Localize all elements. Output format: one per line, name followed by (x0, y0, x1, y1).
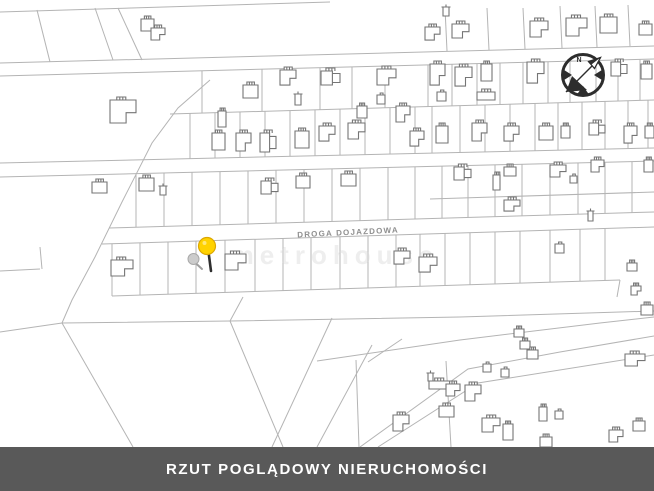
secondary-marker (188, 254, 202, 270)
building-footprint (503, 421, 513, 440)
building-footprint (555, 409, 563, 419)
building-footprint (504, 123, 519, 141)
building-footprint (591, 157, 604, 172)
building-footprint (437, 90, 446, 101)
location-pin[interactable] (199, 238, 216, 272)
compass-n-label: N (576, 57, 581, 64)
building-footprint (396, 103, 410, 122)
building-footprint (631, 283, 641, 295)
building-footprint (482, 415, 500, 432)
building-footprint (639, 21, 652, 35)
compass-east-tick (594, 69, 604, 81)
building-footprint (570, 174, 577, 183)
building-footprint (92, 179, 107, 193)
building-footprint (504, 197, 520, 211)
building-footprint (633, 418, 645, 431)
building-footprint (427, 371, 435, 382)
building-footprint (111, 257, 133, 276)
building-footprint (520, 338, 530, 349)
building-footprint (555, 242, 564, 253)
site-plan-svg: metrohouse DROGA DOJAZDOWA N (0, 0, 654, 447)
building-footprint (483, 362, 491, 372)
building-footprint (645, 123, 654, 138)
building-footprint (243, 82, 258, 98)
building-footprint (442, 5, 451, 17)
compass-west-tick (563, 69, 573, 81)
caption-text: RZUT POGLĄDOWY NIERUCHOMOŚCI (166, 461, 488, 478)
building-footprint (539, 404, 547, 421)
building-footprint (425, 24, 440, 40)
building-footprint (566, 15, 587, 36)
building-footprint (611, 59, 627, 76)
building-footprint (410, 128, 424, 146)
building-footprint (527, 59, 544, 83)
building-footprint (430, 61, 445, 85)
building-footprint (452, 21, 469, 38)
building-footprint (110, 97, 136, 123)
building-footprint (514, 326, 524, 337)
building-footprint (589, 120, 605, 135)
building-footprint (530, 18, 548, 37)
building-footprint (627, 260, 637, 271)
building-footprint (644, 157, 653, 172)
building-footprint (539, 123, 553, 140)
building-footprint (504, 164, 516, 176)
building-footprint (550, 162, 566, 177)
building-footprint (295, 128, 309, 148)
building-footprint (641, 61, 652, 79)
building-footprint (465, 382, 481, 401)
building-footprint (540, 434, 552, 447)
building-footprint (587, 209, 595, 222)
building-footprint (260, 130, 276, 152)
building-footprint (377, 66, 396, 85)
building-footprint (377, 93, 385, 104)
building-footprint (159, 184, 168, 196)
building-footprint (139, 175, 154, 191)
building-footprint (439, 403, 454, 417)
building-footprint (493, 172, 500, 190)
building-footprint (455, 64, 472, 86)
building-footprint (501, 367, 509, 377)
building-footprint (296, 173, 310, 188)
building-footprint (609, 427, 623, 442)
building-footprint (477, 89, 495, 100)
building-footprint (236, 130, 251, 151)
caption-banner: RZUT POGLĄDOWY NIERUCHOMOŚCI (0, 447, 654, 491)
building-footprint (348, 120, 365, 139)
building-footprint (294, 92, 303, 106)
compass-needle-feather (566, 76, 587, 92)
building-footprint (600, 14, 617, 33)
building-footprint (218, 108, 226, 127)
building-footprint (481, 61, 492, 81)
building-footprint (341, 171, 356, 186)
building-footprint (641, 302, 653, 315)
building-footprint (212, 130, 225, 150)
building-footprint (357, 103, 367, 118)
building-footprint (261, 178, 278, 194)
building-footprint (625, 351, 645, 366)
building-footprint (561, 123, 570, 138)
building-footprint (321, 68, 340, 85)
road-label: DROGA DOJAZDOWA (297, 226, 399, 240)
building-footprint (319, 123, 335, 141)
building-footprint (624, 123, 637, 143)
listing-plan-image: metrohouse DROGA DOJAZDOWA N RZUT POGLĄD… (0, 0, 654, 491)
building-footprint (436, 123, 448, 143)
building-footprint (280, 67, 296, 85)
